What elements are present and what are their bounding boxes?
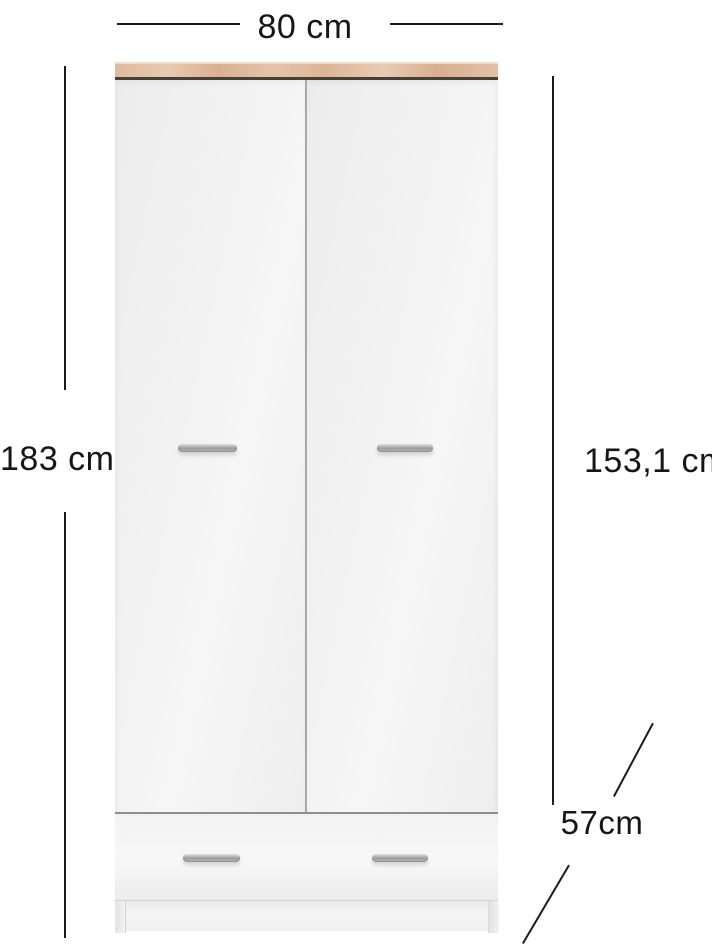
right-door-handle <box>377 444 433 452</box>
wardrobe-drawer-front <box>115 814 498 901</box>
door-height-dimension-label: 153,1 cm <box>584 441 712 481</box>
wardrobe-plinth <box>126 901 488 931</box>
drawer-left-handle <box>183 854 240 862</box>
depth-dimension-label: 57cm <box>556 803 648 843</box>
wardrobe-wood-top-panel <box>115 62 498 77</box>
wardrobe-right-leg <box>488 901 499 933</box>
drawer-right-handle <box>372 854 428 862</box>
width-dimension-line-left <box>117 23 240 25</box>
height-dimension-line-bottom <box>64 512 66 938</box>
depth-dimension-line-upper <box>613 723 654 797</box>
wardrobe-dimension-diagram: 80 cm 183 cm 153,1 cm 57cm <box>0 0 712 945</box>
width-dimension-label: 80 cm <box>245 7 365 47</box>
wardrobe-door-gap <box>305 80 307 813</box>
depth-dimension-line-lower <box>522 865 570 944</box>
width-dimension-line-right <box>390 23 503 25</box>
height-dimension-label: 183 cm <box>0 439 105 479</box>
wardrobe-left-leg <box>115 901 126 933</box>
left-door-handle <box>178 444 237 452</box>
height-dimension-line-top <box>64 66 66 390</box>
door-height-dimension-line <box>552 76 554 805</box>
